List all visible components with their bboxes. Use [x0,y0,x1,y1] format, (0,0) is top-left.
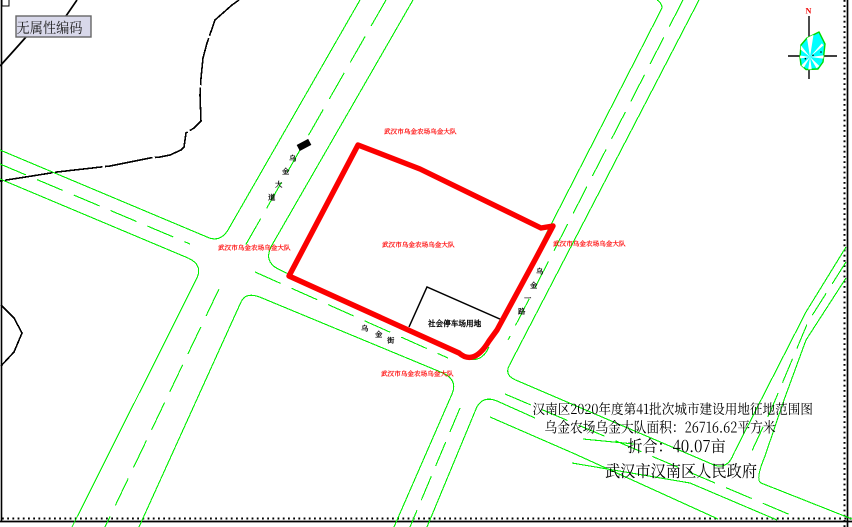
svg-text:N: N [806,7,812,16]
